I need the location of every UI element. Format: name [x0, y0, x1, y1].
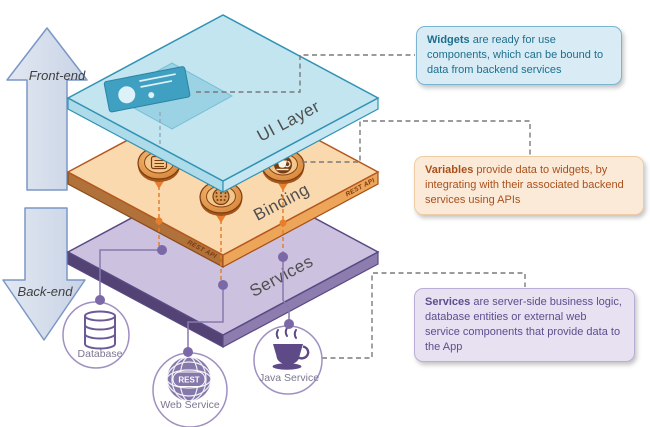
- dot-web-service: [183, 347, 193, 357]
- dot-database: [95, 295, 105, 305]
- architecture-diagram: Front-end Back-end Services Binding REST…: [0, 0, 650, 427]
- java-service-node: Java Service: [254, 326, 322, 394]
- front-end-label: Front-end: [29, 68, 86, 83]
- widgets-callout-keyword: Widgets: [427, 34, 470, 46]
- edge-dot-1: [156, 218, 163, 225]
- variables-callout: Variables provide data to widgets, by in…: [414, 156, 644, 215]
- dot-java-service: [284, 319, 294, 329]
- widgets-callout: Widgets are ready for use components, wh…: [416, 26, 622, 85]
- rest-globe-icon: REST: [167, 357, 211, 401]
- web-service-label: Web Service: [160, 399, 219, 411]
- services-callout-keyword: Services: [425, 296, 470, 308]
- back-end-label: Back-end: [18, 284, 74, 299]
- dot-services-layer-2: [218, 280, 228, 290]
- dot-services-layer-1: [157, 245, 167, 255]
- database-icon: [85, 312, 115, 349]
- database-node: Database: [63, 302, 129, 368]
- edge-dot-3: [280, 220, 287, 227]
- services-callout: Services are server-side business logic,…: [414, 288, 635, 362]
- variables-callout-keyword: Variables: [425, 164, 473, 176]
- web-service-node: REST Web Service: [153, 353, 227, 427]
- dot-services-layer-3: [278, 252, 288, 262]
- rest-badge: REST: [178, 376, 199, 385]
- database-label: Database: [78, 348, 123, 360]
- java-service-label: Java Service: [259, 372, 319, 384]
